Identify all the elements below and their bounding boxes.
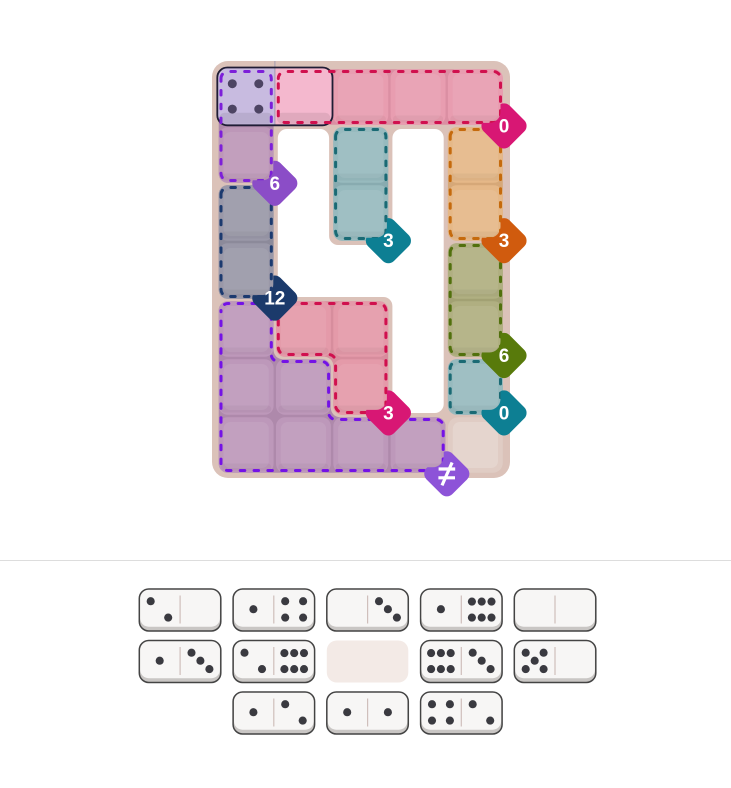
svg-text:0: 0	[499, 403, 510, 424]
svg-text:3: 3	[499, 231, 510, 252]
svg-text:3: 3	[383, 231, 394, 252]
svg-text:6: 6	[270, 174, 281, 195]
svg-text:12: 12	[264, 289, 285, 310]
svg-text:3: 3	[383, 403, 394, 424]
svg-text:6: 6	[499, 346, 510, 367]
svg-text:0: 0	[499, 116, 510, 137]
